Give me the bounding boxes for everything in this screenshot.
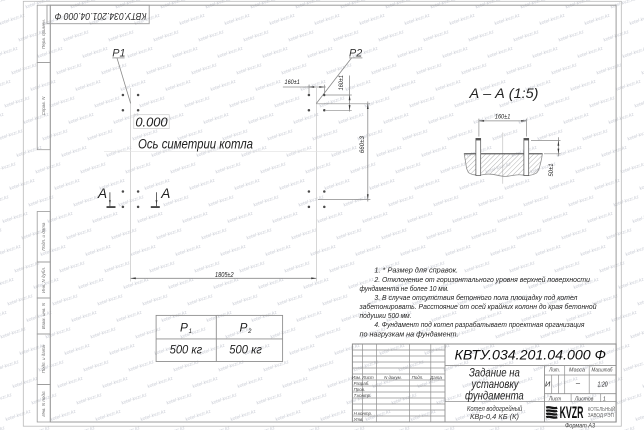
svg-text:Справ. N: Справ. N [41, 96, 46, 116]
svg-text:Инв. N подл.: Инв. N подл. [41, 390, 46, 416]
svg-text:забетонировать. Расстояние от: забетонировать. Расстояние от осей крайн… [359, 302, 597, 311]
svg-text:N докум.: N докум. [384, 375, 402, 380]
svg-text:2. Отклонение от горизонтальн: 2. Отклонение от горизонтального уровня … [373, 275, 590, 284]
svg-text:1805±2: 1805±2 [215, 272, 234, 279]
svg-text:Подп. и дата: Подп. и дата [41, 222, 46, 251]
svg-text:1. * Размер для справок.: 1. * Размер для справок. [374, 266, 458, 275]
svg-text:KVZR: KVZR [560, 404, 584, 422]
svg-text:КВр-0,4 КБ (К): КВр-0,4 КБ (К) [470, 414, 519, 421]
svg-text:1:20: 1:20 [598, 380, 609, 389]
svg-text:КВТУ.034.201.04.000 Ф: КВТУ.034.201.04.000 Ф [455, 347, 606, 363]
svg-text:Пров.: Пров. [354, 387, 366, 392]
svg-text:4. Фундамент под котел разраб: 4. Фундамент под котел разрабатывает про… [374, 320, 584, 329]
svg-text:Подп.: Подп. [412, 375, 424, 380]
svg-text:Инв. N дубл.: Инв. N дубл. [41, 267, 46, 293]
svg-text:Изм.: Изм. [352, 375, 361, 380]
svg-text:Т.контр.: Т.контр. [354, 393, 372, 398]
svg-text:Лит.: Лит. [548, 367, 560, 373]
svg-text:фундамента: фундамента [465, 388, 524, 402]
svg-text:Формат А3: Формат А3 [565, 423, 596, 430]
svg-text:И: И [545, 380, 551, 389]
svg-text:КОТЕЛЬНЫЙ: КОТЕЛЬНЫЙ [588, 405, 616, 413]
svg-text:1: 1 [189, 329, 192, 335]
svg-text:500 кг: 500 кг [229, 345, 262, 357]
svg-text:по нагрузкам на фундамент.: по нагрузкам на фундамент. [360, 329, 459, 338]
svg-text:Лист: Лист [548, 396, 562, 402]
svg-text:фундамента не более 10 мм.: фундамента не более 10 мм. [360, 284, 449, 293]
svg-text:0.000: 0.000 [135, 116, 167, 130]
svg-text:А: А [160, 186, 170, 201]
svg-text:Утв.: Утв. [354, 417, 364, 422]
svg-text:1: 1 [603, 396, 606, 402]
svg-text:P: P [180, 321, 188, 335]
svg-text:Масштаб: Масштаб [592, 367, 614, 373]
svg-text:160±1: 160±1 [495, 114, 511, 121]
svg-text:–: – [575, 378, 581, 387]
svg-text:Ось симетрии котла: Ось симетрии котла [138, 137, 253, 152]
svg-text:Лист: Лист [361, 375, 374, 380]
svg-text:Взам. инв. N: Взам. инв. N [41, 302, 46, 329]
svg-text:P: P [240, 321, 248, 335]
svg-text:50±1: 50±1 [548, 164, 555, 177]
svg-text:А – А (1:5): А – А (1:5) [468, 86, 538, 101]
svg-text:Дата: Дата [429, 375, 442, 380]
svg-text:Котел водогрейный: Котел водогрейный [467, 405, 522, 413]
svg-text:Листов: Листов [574, 396, 594, 402]
svg-text:подушки 500 мм.: подушки 500 мм. [360, 311, 412, 320]
svg-text:Разраб.: Разраб. [354, 381, 370, 386]
svg-text:ЗАВОД РЭП: ЗАВОД РЭП [588, 413, 615, 419]
svg-text:А: А [97, 186, 107, 201]
svg-text:660±3: 660±3 [359, 136, 366, 153]
svg-text:Перв. примен.: Перв. примен. [41, 19, 46, 49]
svg-text:500 кг: 500 кг [170, 345, 203, 357]
svg-text:160±1: 160±1 [285, 79, 300, 86]
svg-text:КВТУ.034.201.04.000 Ф: КВТУ.034.201.04.000 Ф [55, 10, 147, 21]
svg-text:Н.контр.: Н.контр. [354, 411, 373, 416]
svg-text:Масса: Масса [569, 367, 585, 373]
svg-text:160±1: 160±1 [338, 75, 345, 90]
svg-text:3. В случае отсутствия бетонн: 3. В случае отсутствия бетонного пола пл… [374, 293, 578, 302]
svg-text:2: 2 [247, 329, 252, 335]
svg-text:Подп. и дата: Подп. и дата [41, 345, 46, 374]
